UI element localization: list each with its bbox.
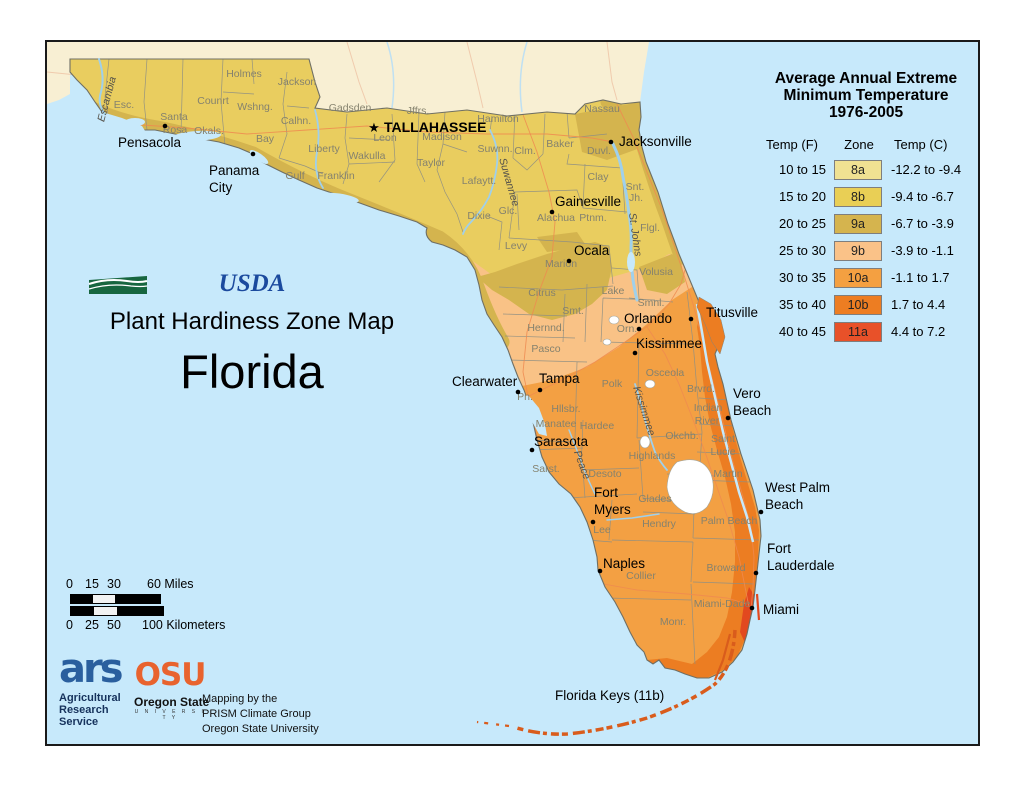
legend-col-temp-f: Temp (F) [752, 137, 832, 152]
county-label: Flgl. [640, 222, 660, 234]
city-dot [754, 571, 759, 576]
city-dot [538, 388, 543, 393]
county-label: Glc. [499, 205, 518, 217]
county-label: Lee [593, 524, 611, 536]
city-label: Myers [594, 502, 631, 517]
city-label: Beach [733, 403, 771, 418]
legend-temp-c: -1.1 to 1.7 [882, 270, 980, 285]
mapping-line1: Mapping by the [202, 692, 319, 707]
map-frame: Esc.SantaRosaOkals.CounrtHolmesWshng.Jac… [45, 40, 980, 746]
osu-logo: OSU Oregon State U N I V E R S I T Y [134, 660, 206, 721]
legend-title: Average Annual Extreme Minimum Temperatu… [752, 70, 980, 121]
city-dot [637, 327, 642, 332]
county-label: Santa [160, 111, 188, 123]
city-dot [598, 569, 603, 574]
legend-rows: 10 to 158a-12.2 to -9.415 to 208b-9.4 to… [752, 156, 980, 345]
county-label: Clay [587, 171, 609, 183]
legend-col-zone: Zone [832, 137, 886, 152]
capital-star-icon: ★ [368, 120, 380, 135]
county-label: Citrus [528, 287, 555, 299]
city-label: Fort [594, 485, 618, 500]
legend-temp-f: 15 to 20 [752, 189, 830, 204]
zone-swatch: 8b [834, 187, 882, 207]
city-label: City [209, 180, 232, 195]
page: { "legend": { "title_lines": ["Average A… [0, 0, 1024, 791]
zone-swatch: 8a [834, 160, 882, 180]
city-label: Fort [767, 541, 791, 556]
ars-line3: Service [59, 716, 139, 728]
legend-temp-c: -3.9 to -1.1 [882, 243, 980, 258]
osu-university: U N I V E R S I T Y [134, 709, 206, 721]
county-label: Indian [694, 402, 723, 414]
county-label: Volusia [639, 266, 673, 278]
county-label: Franklin [317, 170, 355, 182]
county-label: Okals. [194, 125, 224, 137]
county-label: River [695, 415, 720, 427]
km-bar [70, 606, 164, 616]
county-label: Osceola [646, 367, 685, 379]
legend-temp-c: -9.4 to -6.7 [882, 189, 980, 204]
county-label: Hardee [580, 420, 615, 432]
county-label: Collier [626, 570, 656, 582]
county-label: Lafaytt. [462, 175, 496, 187]
county-label: Hendry [642, 518, 677, 530]
ars-text: Agricultural Research Service [59, 692, 139, 728]
title-block: USDA Plant Hardiness Zone Map Florida [87, 274, 417, 399]
county-label: Broward [706, 562, 745, 574]
ars-glyph-icon: ars [59, 650, 139, 688]
city-dot [567, 259, 572, 264]
city-label: Clearwater [452, 374, 518, 389]
legend-row: 30 to 3510a-1.1 to 1.7 [752, 264, 980, 291]
county-label: Levy [505, 240, 528, 252]
county-label: Pasco [531, 343, 560, 355]
county-label: Jh. [629, 192, 643, 204]
city-dot [591, 520, 596, 525]
km-tick-100: 100 Kilometers [142, 618, 225, 632]
county-label: Marion [545, 258, 577, 270]
county-label: Miami-Dade [694, 598, 751, 610]
city-dot [689, 317, 694, 322]
city-dot [759, 510, 764, 515]
legend-row: 15 to 208b-9.4 to -6.7 [752, 183, 980, 210]
zone-swatch: 9a [834, 214, 882, 234]
miles-tick-15: 15 [85, 577, 99, 591]
county-label: Clm. [514, 145, 536, 157]
county-label: Dixie [467, 210, 490, 222]
legend-temp-f: 25 to 30 [752, 243, 830, 258]
county-label: Okchb. [665, 430, 698, 442]
city-label: Naples [603, 556, 645, 571]
km-tick-25: 25 [85, 618, 99, 632]
florida-keys-label: Florida Keys (11b) [555, 688, 664, 703]
county-label: Suwnn. [477, 143, 512, 155]
county-label: Sarst. [532, 463, 559, 475]
legend-title-line1: Average Annual Extreme [752, 70, 980, 87]
osu-logo-text: OSU [134, 660, 206, 690]
city-dot [516, 390, 521, 395]
county-label: Calhn. [281, 115, 311, 127]
mapping-credit: Mapping by the PRISM Climate Group Orego… [202, 692, 319, 737]
county-label: Glades [638, 493, 671, 505]
city-label: Orlando [624, 311, 672, 326]
county-label: Wakulla [349, 150, 386, 162]
city-dot [750, 606, 755, 611]
city-label: Panama [209, 163, 260, 178]
city-label: Gainesville [555, 194, 621, 209]
mapping-line3: Oregon State University [202, 722, 319, 737]
zone-swatch: 10a [834, 268, 882, 288]
county-label: Counrt [197, 95, 229, 107]
miles-tick-0: 0 [66, 577, 73, 591]
county-label: Jffrs. [407, 105, 430, 117]
legend-title-line2: Minimum Temperature [752, 87, 980, 104]
usda-field-icon [87, 274, 149, 296]
legend-panel: Average Annual Extreme Minimum Temperatu… [752, 70, 980, 345]
county-label: Smnl. [638, 297, 665, 309]
legend-temp-f: 10 to 15 [752, 162, 830, 177]
county-label: Ptnm. [579, 212, 606, 224]
county-label: Saint [711, 433, 735, 445]
city-dot [550, 210, 555, 215]
county-label: Lake [602, 285, 625, 297]
city-label: West Palm [765, 480, 830, 495]
legend-temp-c: 4.4 to 7.2 [882, 324, 980, 339]
city-label: Ocala [574, 243, 610, 258]
city-label: Jacksonville [619, 134, 692, 149]
city-label: Tampa [539, 371, 580, 386]
county-label: Bay [256, 133, 275, 145]
city-dot [163, 124, 168, 129]
city-label: Beach [765, 497, 803, 512]
miles-tick-30: 30 [107, 577, 121, 591]
legend-row: 20 to 259a-6.7 to -3.9 [752, 210, 980, 237]
legend-temp-c: -12.2 to -9.4 [882, 162, 980, 177]
county-label: Polk [602, 378, 623, 390]
county-label: Brvrd. [687, 383, 715, 395]
county-label: Liberty [308, 143, 340, 155]
legend-row: 10 to 158a-12.2 to -9.4 [752, 156, 980, 183]
mapping-line2: PRISM Climate Group [202, 707, 319, 722]
county-label: Lucie [710, 446, 735, 458]
county-label: Jackson [278, 76, 317, 88]
county-label: Wshng. [237, 101, 273, 113]
city-dot [633, 351, 638, 356]
zone-swatch: 10b [834, 295, 882, 315]
miles-tick-60: 60 Miles [147, 577, 194, 591]
zone-swatch: 9b [834, 241, 882, 261]
capital-label: TALLAHASSEE [384, 119, 486, 135]
county-label: Duvl. [587, 145, 611, 157]
city-label: Pensacola [118, 135, 182, 150]
legend-temp-f: 35 to 40 [752, 297, 830, 312]
map-title: Plant Hardiness Zone Map [87, 308, 417, 336]
county-label: Baker [546, 138, 574, 150]
legend-temp-c: 1.7 to 4.4 [882, 297, 980, 312]
usda-logo-text: USDA [219, 274, 286, 294]
county-label: Hllsbr. [551, 403, 580, 415]
city-label: Kissimmee [636, 336, 702, 351]
miles-bar [70, 594, 161, 604]
ars-line1: Agricultural [59, 692, 139, 704]
city-dot [251, 152, 256, 157]
city-label: Titusville [706, 305, 758, 320]
county-label: Monr. [660, 616, 686, 628]
county-label: Hernnd. [527, 322, 564, 334]
ars-logo: ars Agricultural Research Service [59, 650, 139, 728]
legend-temp-f: 20 to 25 [752, 216, 830, 231]
city-label: Miami [763, 602, 799, 617]
county-label: Palm Beach [701, 515, 758, 527]
legend-temp-f: 30 to 35 [752, 270, 830, 285]
scale-bar: 0 15 30 60 Miles 0 25 50 100 Kilometers [47, 577, 307, 633]
legend-title-line3: 1976-2005 [752, 104, 980, 121]
city-label: Vero [733, 386, 761, 401]
county-label: Manatee [536, 418, 577, 430]
legend-temp-c: -6.7 to -3.9 [882, 216, 980, 231]
county-label: Highlands [629, 450, 676, 462]
legend-row: 25 to 309b-3.9 to -1.1 [752, 237, 980, 264]
county-label: Esc. [114, 99, 134, 111]
legend-row: 40 to 4511a4.4 to 7.2 [752, 318, 980, 345]
legend-row: 35 to 4010b1.7 to 4.4 [752, 291, 980, 318]
city-label: Sarasota [534, 434, 589, 449]
km-tick-0: 0 [66, 618, 73, 632]
legend-col-temp-c: Temp (C) [886, 137, 980, 152]
ars-line2: Research [59, 704, 139, 716]
legend-temp-f: 40 to 45 [752, 324, 830, 339]
county-label: Desoto [588, 468, 621, 480]
km-tick-50: 50 [107, 618, 121, 632]
city-label: Lauderdale [767, 558, 835, 573]
city-dot [726, 416, 731, 421]
county-label: Taylor [417, 157, 446, 169]
osu-subtitle: Oregon State [134, 696, 206, 709]
county-label: Gulf [285, 170, 304, 182]
city-dot [609, 140, 614, 145]
county-label: Smt. [562, 305, 584, 317]
county-label: Alachua [537, 212, 575, 224]
legend-header: Temp (F) Zone Temp (C) [752, 137, 980, 152]
county-label: Holmes [226, 68, 262, 80]
county-label: Gadsden [329, 102, 372, 114]
usda-logo: USDA [219, 274, 286, 294]
county-label: Martin [713, 468, 742, 480]
county-label: Nassau [584, 103, 620, 115]
state-name: Florida [87, 344, 417, 399]
zone-swatch: 11a [834, 322, 882, 342]
